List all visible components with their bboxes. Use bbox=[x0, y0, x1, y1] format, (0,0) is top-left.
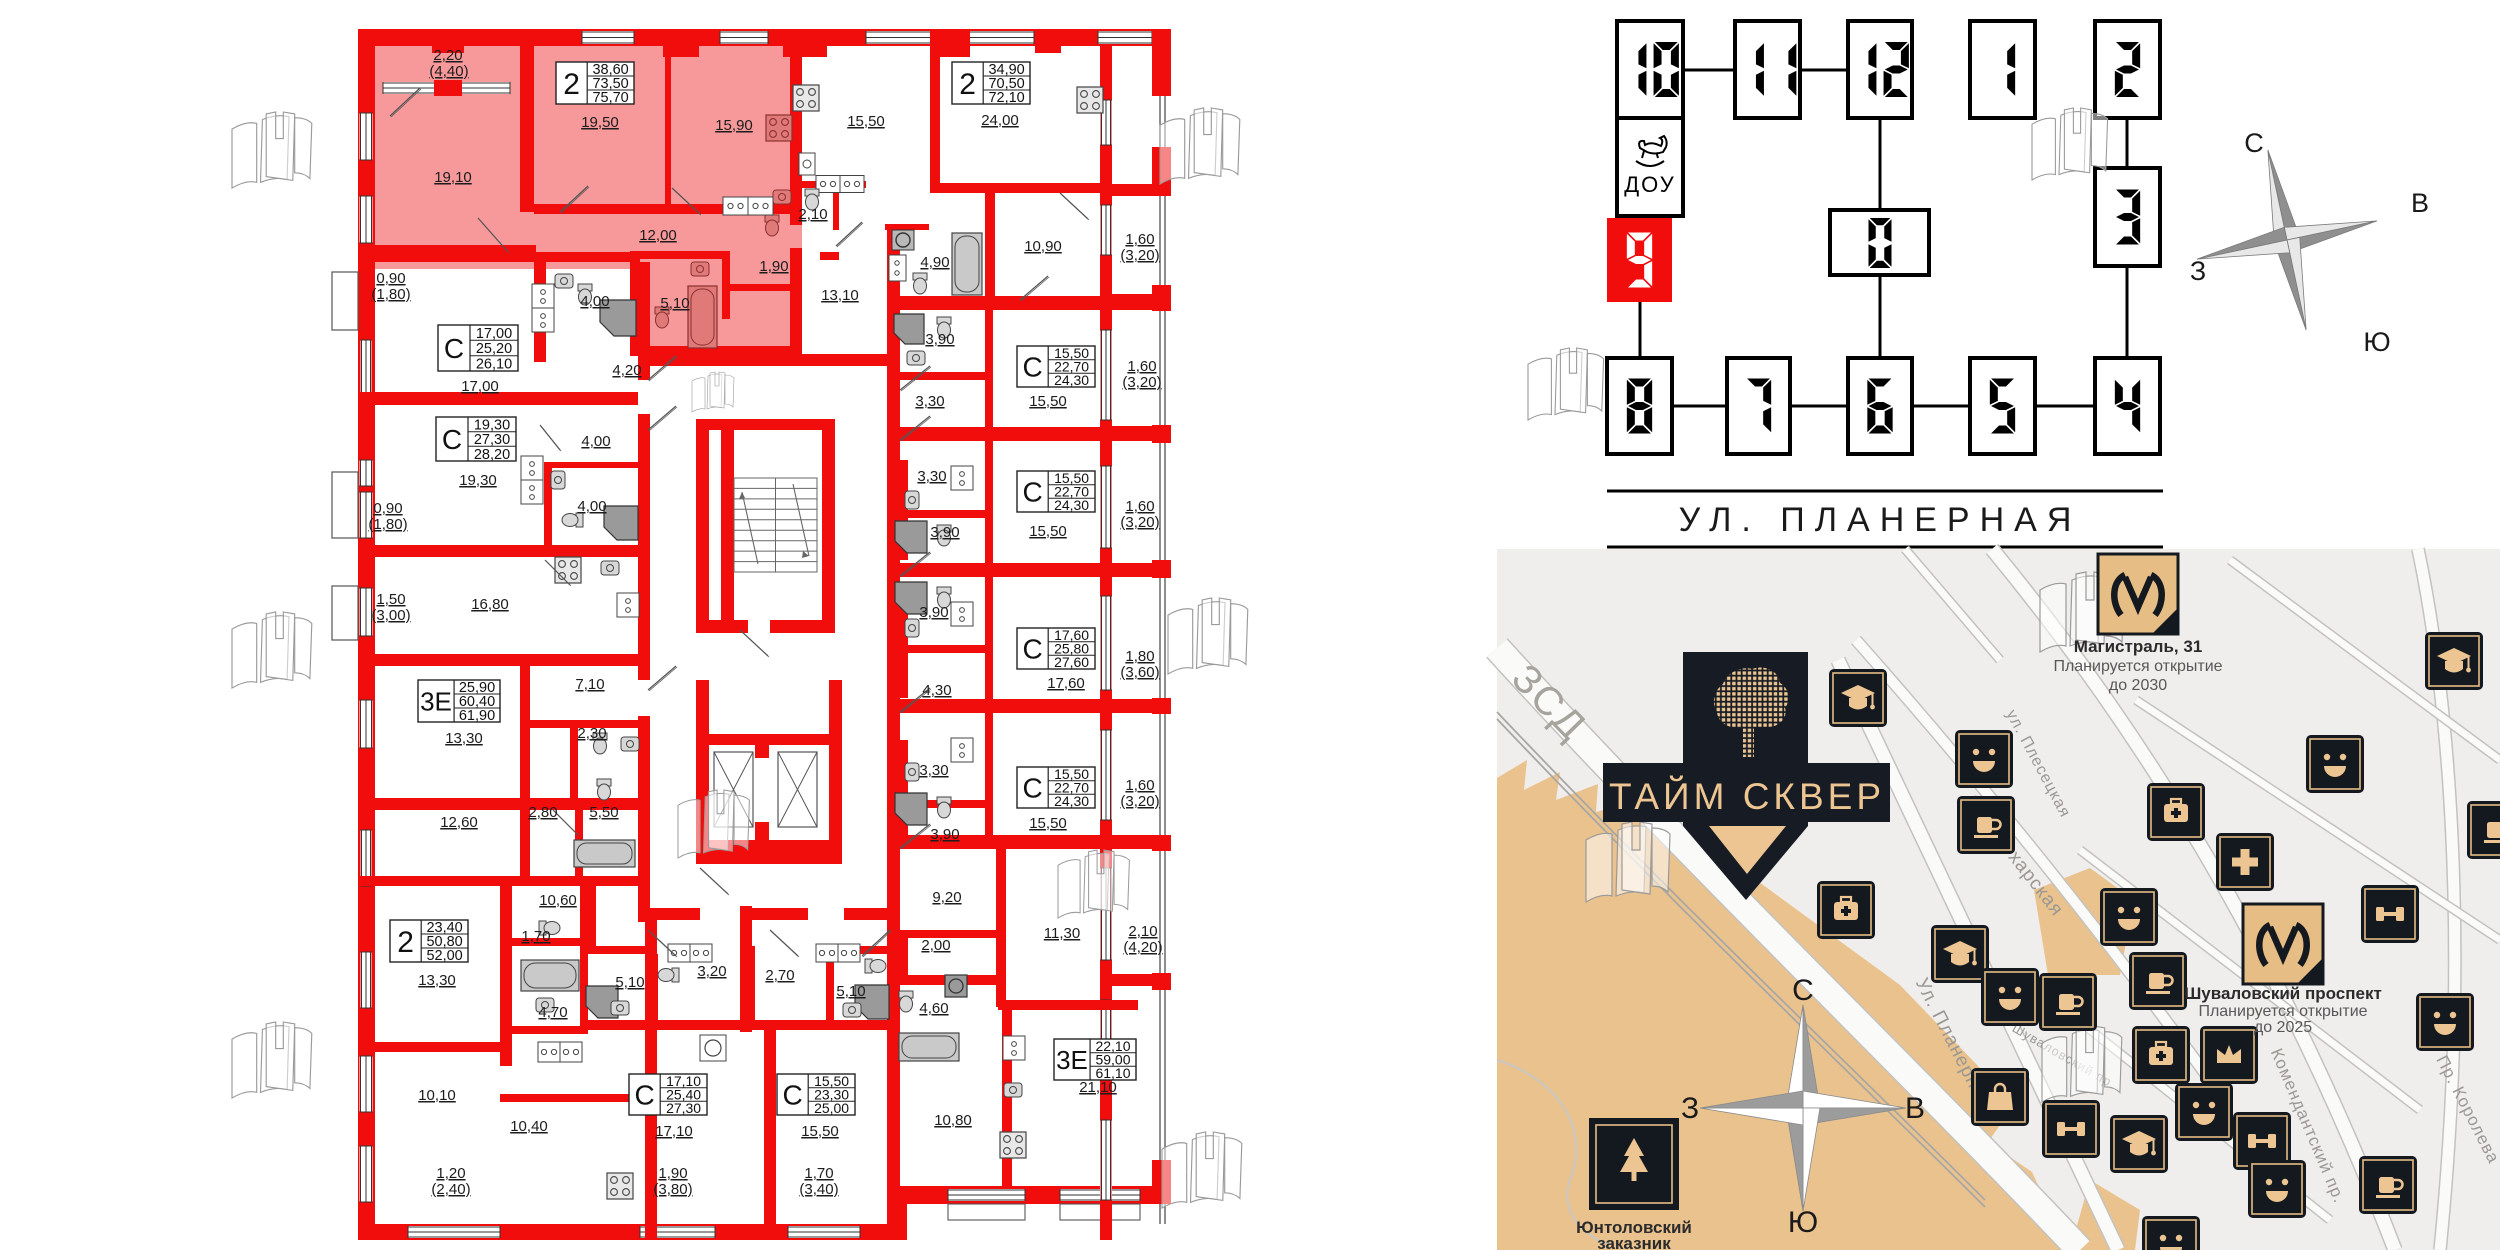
svg-text:(3,20): (3,20) bbox=[1120, 793, 1159, 810]
svg-text:4,20: 4,20 bbox=[612, 362, 641, 379]
svg-text:Магистраль, 31: Магистраль, 31 bbox=[2074, 637, 2203, 656]
svg-text:15,50: 15,50 bbox=[1029, 523, 1067, 540]
svg-text:27,60: 27,60 bbox=[1054, 654, 1089, 670]
svg-text:Планируется открытие: Планируется открытие bbox=[2053, 658, 2222, 675]
svg-text:С: С bbox=[1792, 974, 1814, 1007]
svg-text:16,80: 16,80 bbox=[471, 596, 509, 613]
svg-text:52,00: 52,00 bbox=[426, 948, 462, 964]
svg-text:З: З bbox=[2190, 256, 2206, 286]
svg-text:(4,20): (4,20) bbox=[1123, 939, 1162, 956]
svg-text:12,60: 12,60 bbox=[440, 814, 478, 831]
svg-text:З: З bbox=[1681, 1092, 1699, 1125]
svg-text:(1,80): (1,80) bbox=[371, 286, 410, 303]
svg-text:13,10: 13,10 bbox=[821, 287, 859, 304]
svg-text:10,80: 10,80 bbox=[934, 1112, 972, 1129]
svg-text:11,30: 11,30 bbox=[1044, 925, 1080, 942]
svg-text:0,90: 0,90 bbox=[373, 500, 402, 517]
svg-text:3,30: 3,30 bbox=[915, 393, 944, 410]
svg-text:1,60: 1,60 bbox=[1125, 231, 1154, 248]
svg-text:17,10: 17,10 bbox=[655, 1123, 693, 1140]
svg-text:24,30: 24,30 bbox=[1054, 793, 1089, 809]
svg-text:(3,00): (3,00) bbox=[371, 607, 410, 624]
svg-text:С: С bbox=[442, 424, 462, 455]
svg-text:28,20: 28,20 bbox=[474, 447, 510, 463]
svg-text:(3,60): (3,60) bbox=[1120, 664, 1159, 681]
svg-text:В: В bbox=[2411, 188, 2429, 218]
svg-text:Шуваловский проспект: Шуваловский проспект bbox=[2184, 984, 2382, 1003]
svg-text:1,60: 1,60 bbox=[1127, 358, 1156, 375]
svg-text:4,30: 4,30 bbox=[922, 682, 951, 699]
svg-text:4,00: 4,00 bbox=[580, 293, 609, 310]
svg-text:до 2025: до 2025 bbox=[2254, 1019, 2312, 1036]
svg-text:24,00: 24,00 bbox=[981, 112, 1019, 129]
svg-text:1,70: 1,70 bbox=[804, 1165, 833, 1182]
svg-text:3Е: 3Е bbox=[1056, 1045, 1088, 1075]
svg-text:26,10: 26,10 bbox=[476, 357, 512, 373]
svg-text:10,90: 10,90 bbox=[1024, 238, 1062, 255]
svg-text:27,30: 27,30 bbox=[666, 1100, 701, 1116]
svg-text:3,90: 3,90 bbox=[930, 524, 959, 541]
svg-text:1,90: 1,90 bbox=[759, 258, 788, 275]
svg-text:(2,40): (2,40) bbox=[431, 1181, 470, 1198]
svg-text:10,40: 10,40 bbox=[510, 1118, 548, 1135]
svg-text:19,50: 19,50 bbox=[581, 114, 619, 131]
svg-text:3Е: 3Е bbox=[420, 686, 452, 716]
svg-text:2,10: 2,10 bbox=[798, 206, 827, 223]
svg-text:3,30: 3,30 bbox=[919, 762, 948, 779]
svg-text:5,10: 5,10 bbox=[836, 983, 865, 1000]
svg-text:19,30: 19,30 bbox=[459, 472, 497, 489]
svg-text:5,10: 5,10 bbox=[660, 295, 689, 312]
svg-text:0,90: 0,90 bbox=[376, 270, 405, 287]
svg-text:(3,20): (3,20) bbox=[1120, 247, 1159, 264]
svg-text:2,20: 2,20 bbox=[433, 47, 462, 64]
svg-text:(3,20): (3,20) bbox=[1122, 374, 1161, 391]
svg-text:1,80: 1,80 bbox=[1125, 648, 1154, 665]
svg-text:1,70: 1,70 bbox=[521, 928, 550, 945]
svg-text:61,90: 61,90 bbox=[459, 708, 495, 724]
svg-text:72,10: 72,10 bbox=[988, 90, 1024, 106]
svg-text:С: С bbox=[1022, 352, 1042, 383]
svg-text:ТАЙМ СКВЕР: ТАЙМ СКВЕР bbox=[1609, 775, 1885, 817]
svg-text:4,60: 4,60 bbox=[919, 1000, 948, 1017]
svg-text:Ю: Ю bbox=[1788, 1206, 1818, 1239]
svg-text:3,20: 3,20 bbox=[697, 963, 726, 980]
svg-text:В: В bbox=[1905, 1092, 1925, 1125]
svg-text:С: С bbox=[1022, 477, 1042, 508]
svg-text:17,00: 17,00 bbox=[461, 378, 499, 395]
svg-text:до 2030: до 2030 bbox=[2109, 677, 2167, 694]
svg-text:15,90: 15,90 bbox=[715, 117, 753, 134]
svg-text:2,80: 2,80 bbox=[528, 804, 557, 821]
svg-text:2: 2 bbox=[563, 68, 580, 101]
svg-text:9,20: 9,20 bbox=[932, 889, 961, 906]
svg-text:(4,40): (4,40) bbox=[429, 63, 468, 80]
svg-text:15,50: 15,50 bbox=[801, 1123, 839, 1140]
svg-text:13,30: 13,30 bbox=[418, 972, 456, 989]
svg-text:(1,80): (1,80) bbox=[368, 516, 407, 533]
svg-text:(3,80): (3,80) bbox=[653, 1181, 692, 1198]
svg-text:2,10: 2,10 bbox=[1128, 923, 1157, 940]
svg-text:15,50: 15,50 bbox=[1029, 815, 1067, 832]
svg-text:С: С bbox=[2244, 128, 2264, 158]
svg-text:(3,20): (3,20) bbox=[1120, 514, 1159, 531]
svg-text:1,60: 1,60 bbox=[1125, 777, 1154, 794]
svg-text:15,50: 15,50 bbox=[1029, 393, 1067, 410]
svg-text:2,70: 2,70 bbox=[765, 967, 794, 984]
svg-text:заказник: заказник bbox=[1597, 1234, 1671, 1250]
svg-text:4,90: 4,90 bbox=[920, 254, 949, 271]
svg-text:5,50: 5,50 bbox=[589, 804, 618, 821]
svg-text:15,50: 15,50 bbox=[847, 113, 885, 130]
svg-text:10,10: 10,10 bbox=[418, 1087, 456, 1104]
svg-text:24,30: 24,30 bbox=[1054, 372, 1089, 388]
svg-text:10,60: 10,60 bbox=[539, 892, 577, 909]
svg-text:3,90: 3,90 bbox=[930, 826, 959, 843]
svg-text:1,20: 1,20 bbox=[436, 1165, 465, 1182]
svg-text:2: 2 bbox=[397, 926, 414, 959]
svg-text:5,10: 5,10 bbox=[615, 974, 644, 991]
svg-text:С: С bbox=[1022, 634, 1042, 665]
svg-text:1,90: 1,90 bbox=[658, 1165, 687, 1182]
svg-text:4,00: 4,00 bbox=[577, 498, 606, 515]
svg-text:1,50: 1,50 bbox=[376, 591, 405, 608]
svg-text:С: С bbox=[782, 1080, 802, 1111]
svg-text:3,90: 3,90 bbox=[925, 331, 954, 348]
svg-text:7,10: 7,10 bbox=[575, 676, 604, 693]
svg-text:19,10: 19,10 bbox=[434, 169, 472, 186]
svg-text:4,00: 4,00 bbox=[581, 433, 610, 450]
svg-text:25,20: 25,20 bbox=[476, 341, 512, 357]
svg-text:(3,40): (3,40) bbox=[799, 1181, 838, 1198]
svg-text:С: С bbox=[634, 1080, 654, 1111]
svg-text:2,00: 2,00 bbox=[921, 937, 950, 954]
svg-text:13,30: 13,30 bbox=[445, 730, 483, 747]
svg-text:17,60: 17,60 bbox=[1047, 675, 1085, 692]
svg-text:ДОУ: ДОУ bbox=[1624, 172, 1676, 197]
svg-text:2,30: 2,30 bbox=[577, 725, 606, 742]
svg-text:2: 2 bbox=[959, 68, 976, 101]
svg-text:21,10: 21,10 bbox=[1079, 1079, 1117, 1096]
svg-text:Планируется открытие: Планируется открытие bbox=[2198, 1003, 2367, 1020]
svg-text:19,30: 19,30 bbox=[474, 418, 510, 434]
svg-text:1,60: 1,60 bbox=[1125, 498, 1154, 515]
svg-text:4,70: 4,70 bbox=[538, 1004, 567, 1021]
svg-text:12,00: 12,00 bbox=[639, 227, 677, 244]
svg-text:17,00: 17,00 bbox=[476, 326, 512, 342]
svg-text:УЛ. ПЛАНЕРНАЯ: УЛ. ПЛАНЕРНАЯ bbox=[1679, 501, 2082, 539]
svg-text:75,70: 75,70 bbox=[592, 90, 628, 106]
svg-text:С: С bbox=[1022, 773, 1042, 804]
svg-text:27,30: 27,30 bbox=[474, 432, 510, 448]
svg-text:24,30: 24,30 bbox=[1054, 497, 1089, 513]
svg-text:С: С bbox=[444, 333, 464, 364]
svg-text:3,30: 3,30 bbox=[917, 468, 946, 485]
svg-text:25,00: 25,00 bbox=[814, 1100, 849, 1116]
svg-text:Ю: Ю bbox=[2363, 327, 2390, 357]
svg-text:3,90: 3,90 bbox=[919, 604, 948, 621]
